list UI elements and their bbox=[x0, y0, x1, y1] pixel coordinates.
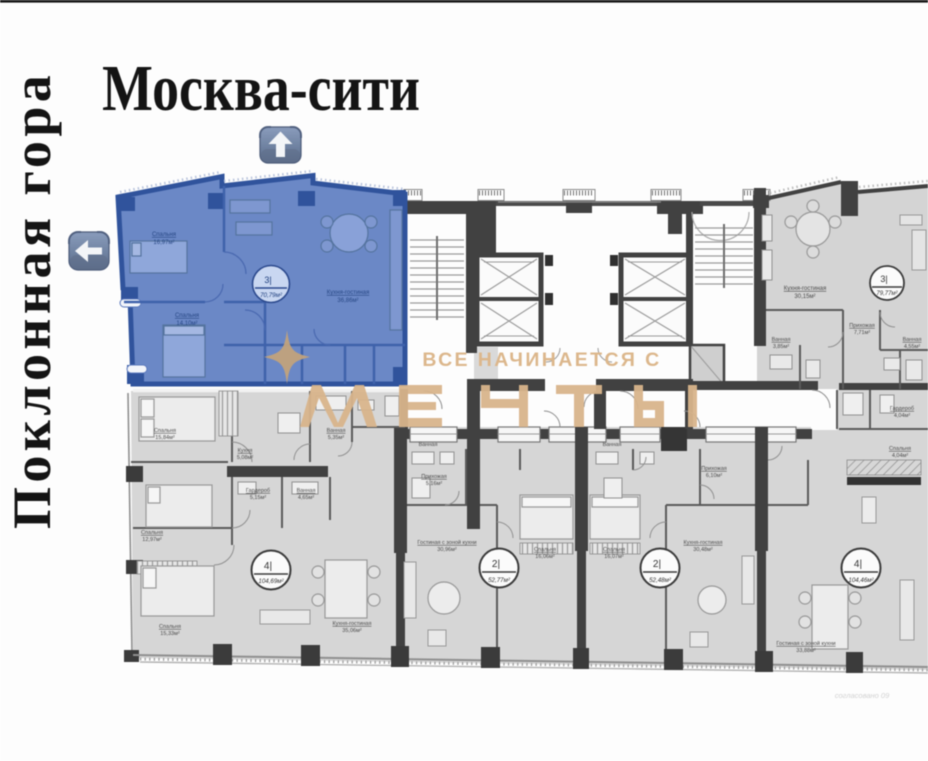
svg-text:5,16м²: 5,16м² bbox=[426, 481, 442, 487]
svg-text:Спальня: Спальня bbox=[141, 530, 163, 536]
svg-text:Прихожая: Прихожая bbox=[701, 466, 727, 472]
svg-text:6,10м²: 6,10м² bbox=[706, 473, 722, 479]
svg-text:3|: 3| bbox=[264, 275, 271, 285]
svg-text:Спальня: Спальня bbox=[154, 428, 176, 434]
svg-text:52,48м²: 52,48м² bbox=[649, 577, 672, 584]
svg-text:Ванная: Ванная bbox=[603, 442, 622, 448]
svg-text:Спальня: Спальня bbox=[175, 313, 199, 319]
svg-text:4|: 4| bbox=[854, 559, 862, 570]
svg-text:4,04м²: 4,04м² bbox=[892, 453, 908, 459]
svg-text:Спальня: Спальня bbox=[889, 446, 911, 452]
svg-text:Поклонная гора: Поклонная гора bbox=[2, 71, 62, 529]
svg-text:Гардероб: Гардероб bbox=[246, 488, 270, 494]
svg-text:Ванная: Ванная bbox=[297, 488, 316, 494]
svg-text:Ванная: Ванная bbox=[419, 442, 438, 448]
svg-text:Прихожая: Прихожая bbox=[849, 323, 875, 329]
svg-text:30,48м²: 30,48м² bbox=[693, 547, 713, 553]
svg-text:5,08м²: 5,08м² bbox=[237, 455, 253, 461]
svg-text:30,15м²: 30,15м² bbox=[794, 294, 815, 300]
svg-text:Спальня: Спальня bbox=[152, 232, 176, 238]
svg-text:Ванная: Ванная bbox=[327, 428, 346, 434]
svg-text:14,10м²: 14,10м² bbox=[176, 321, 197, 327]
svg-text:Прихожая: Прихожая bbox=[421, 474, 447, 480]
svg-text:15,84м²: 15,84м² bbox=[155, 435, 175, 441]
svg-text:4,04м²: 4,04м² bbox=[894, 413, 910, 419]
svg-text:Гардероб: Гардероб bbox=[890, 406, 914, 412]
svg-text:Кухня-гостиная: Кухня-гостиная bbox=[684, 540, 723, 546]
svg-text:52,77м²: 52,77м² bbox=[488, 577, 511, 584]
svg-text:Кухня: Кухня bbox=[238, 448, 253, 454]
svg-text:7,71м²: 7,71м² bbox=[854, 330, 870, 336]
svg-text:15,33м²: 15,33м² bbox=[160, 631, 180, 637]
svg-text:Гостиная с зоной кухни: Гостиная с зоной кухни bbox=[417, 539, 476, 546]
svg-text:30,96м²: 30,96м² bbox=[437, 547, 457, 553]
svg-text:35,06м²: 35,06м² bbox=[342, 628, 362, 634]
svg-text:16,06м²: 16,06м² bbox=[535, 554, 555, 560]
svg-text:12,97м²: 12,97м² bbox=[142, 537, 162, 543]
svg-text:33,88м²: 33,88м² bbox=[796, 648, 816, 654]
svg-text:Спальня: Спальня bbox=[603, 547, 625, 553]
svg-text:2|: 2| bbox=[653, 559, 661, 570]
svg-text:2|: 2| bbox=[492, 559, 500, 570]
svg-text:79,77м²: 79,77м² bbox=[876, 291, 898, 297]
svg-text:Кухня-гостиная: Кухня-гостиная bbox=[784, 286, 826, 292]
svg-text:Гостиная с зоной кухни: Гостиная с зоной кухни bbox=[776, 640, 835, 647]
svg-text:70,79м²: 70,79м² bbox=[260, 292, 283, 299]
svg-text:ВСЕ НАЧИНАЕТСЯ С: ВСЕ НАЧИНАЕТСЯ С bbox=[422, 349, 661, 371]
svg-text:5,15м²: 5,15м² bbox=[250, 495, 266, 501]
svg-text:16,97м²: 16,97м² bbox=[153, 240, 174, 246]
svg-text:16,07м²: 16,07м² bbox=[604, 554, 624, 560]
svg-text:4,55м²: 4,55м² bbox=[904, 344, 920, 350]
svg-text:104,69м²: 104,69м² bbox=[258, 578, 284, 585]
svg-text:согласовано 09: согласовано 09 bbox=[835, 691, 890, 700]
svg-text:5,35м²: 5,35м² bbox=[328, 435, 344, 441]
svg-text:3|: 3| bbox=[880, 274, 887, 284]
svg-text:Ванная: Ванная bbox=[772, 337, 791, 343]
svg-text:3,85м²: 3,85м² bbox=[773, 344, 789, 350]
svg-text:36,86м²: 36,86м² bbox=[337, 298, 358, 304]
svg-text:4|: 4| bbox=[264, 561, 272, 572]
svg-text:Ванная: Ванная bbox=[903, 337, 922, 343]
svg-text:104,46м²: 104,46м² bbox=[848, 577, 874, 584]
svg-text:Кухня-гостиная: Кухня-гостиная bbox=[327, 290, 369, 296]
svg-text:Спальня: Спальня bbox=[159, 624, 181, 630]
svg-text:Кухня-гостиная: Кухня-гостиная bbox=[333, 621, 372, 627]
svg-text:4,65м²: 4,65м² bbox=[298, 495, 314, 501]
svg-text:Спальня: Спальня bbox=[534, 547, 556, 553]
svg-text:Москва-сити: Москва-сити bbox=[102, 52, 420, 125]
